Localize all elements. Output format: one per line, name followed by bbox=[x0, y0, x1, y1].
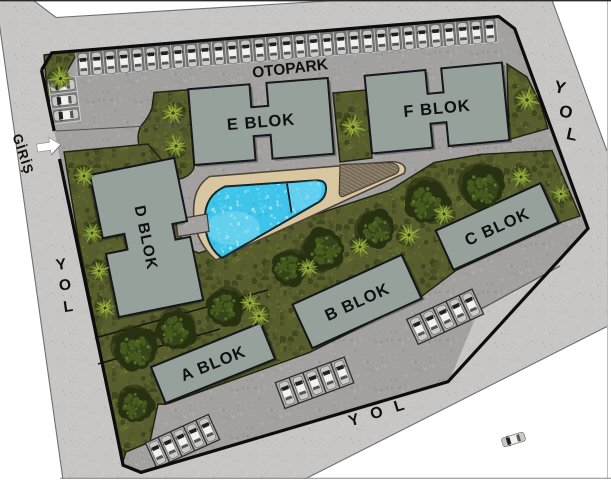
svg-text:O: O bbox=[58, 276, 72, 295]
